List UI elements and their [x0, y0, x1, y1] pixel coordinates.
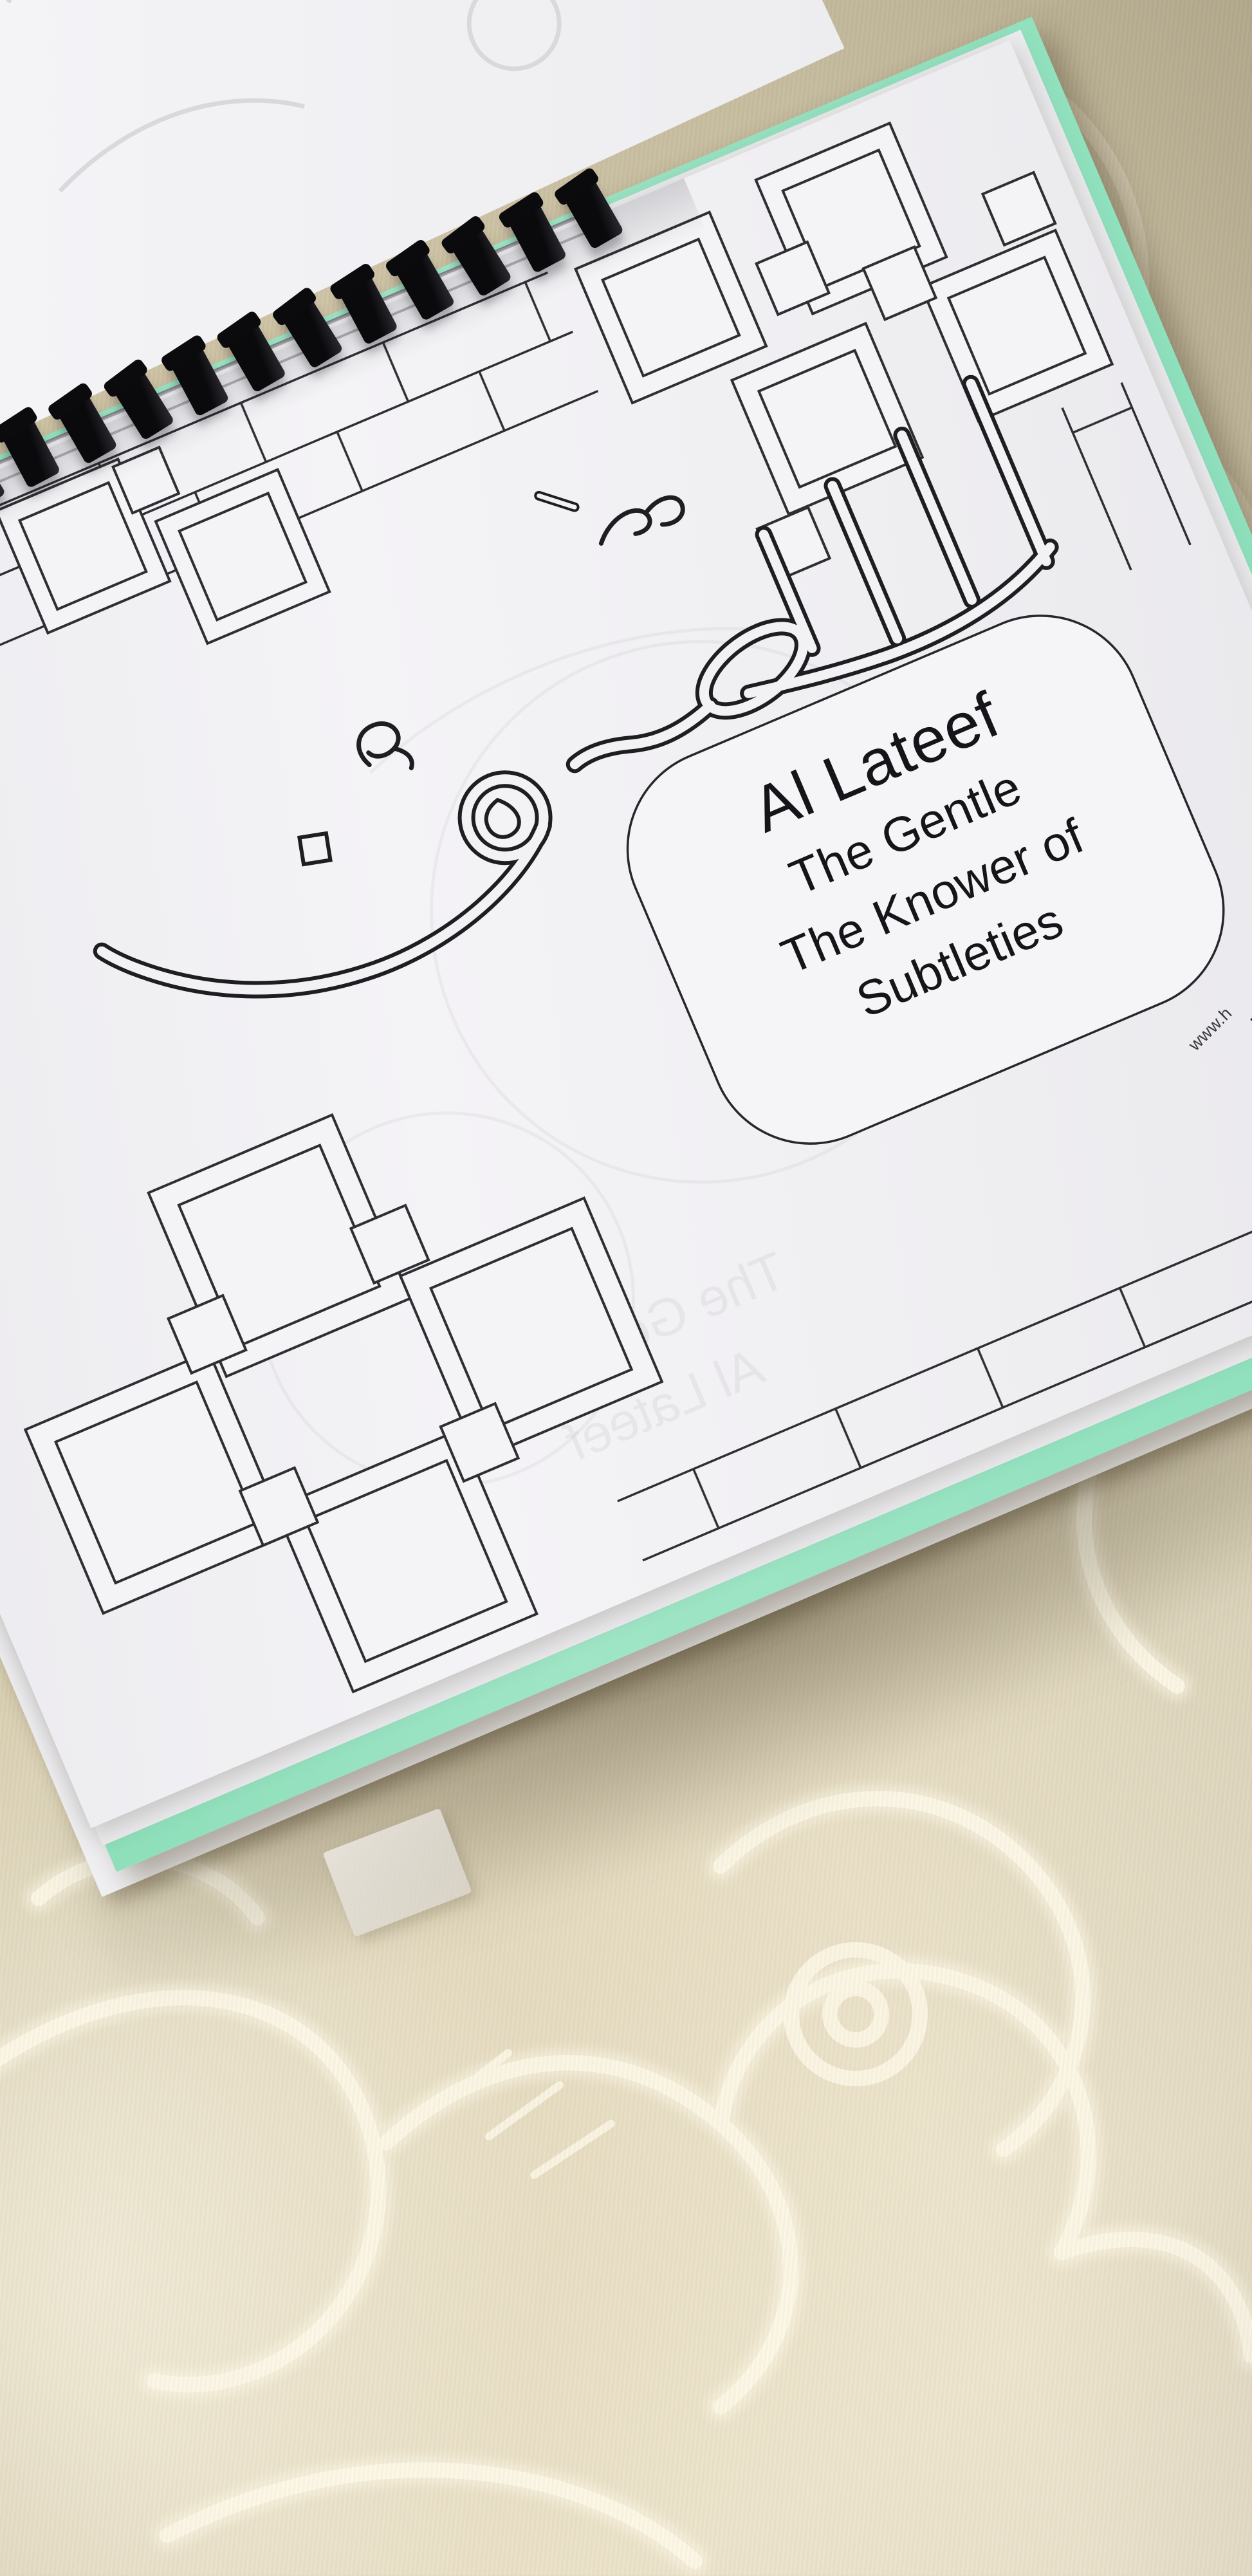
damma-mark — [353, 717, 414, 784]
shadda-mark — [594, 492, 686, 551]
faa-dot-square — [299, 833, 330, 864]
name-box: Al Lateef The Gentle The Knower of Subtl… — [596, 584, 1252, 1174]
website-url: www.h — [1184, 1003, 1236, 1055]
photo-scene: { "page": { "arabic_word": "اللَّطِيفُ",… — [0, 0, 1252, 2576]
